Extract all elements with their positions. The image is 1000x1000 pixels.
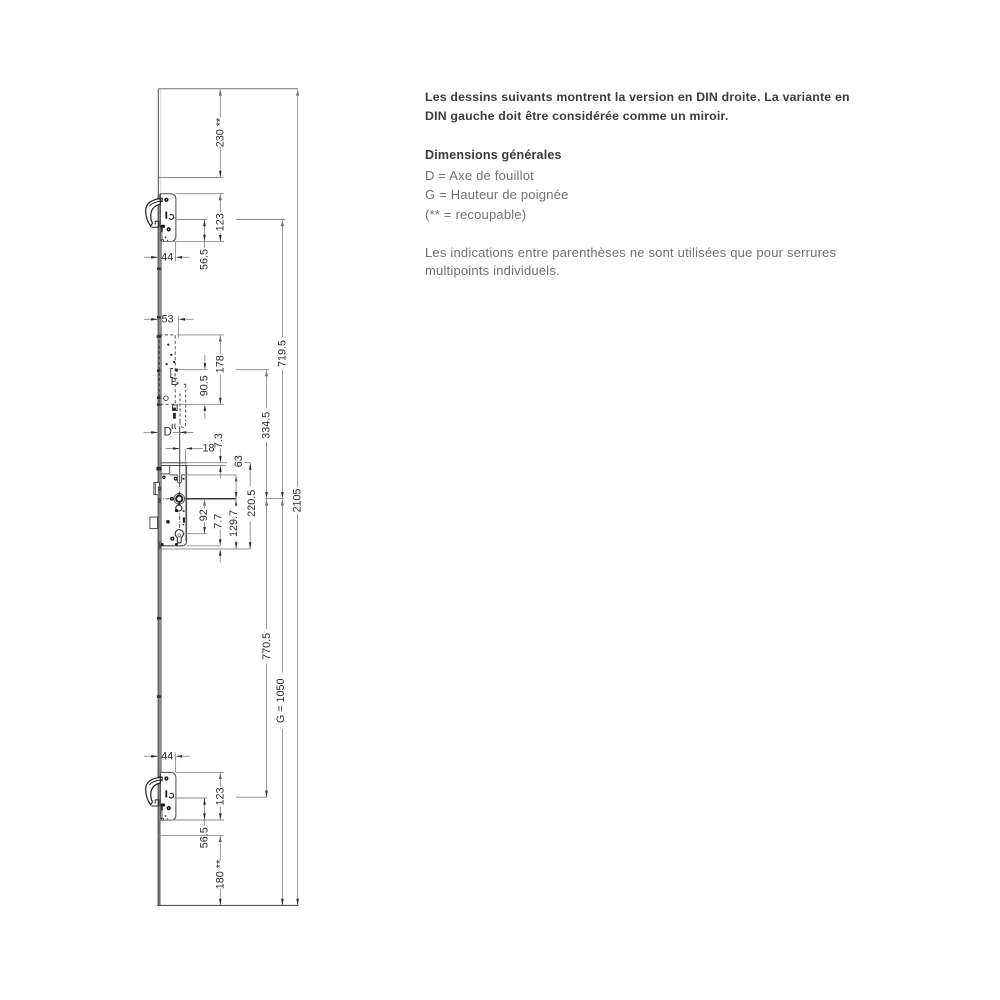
svg-text:90.5: 90.5 (199, 375, 211, 396)
svg-text:92: 92 (198, 509, 210, 521)
svg-text:180 **: 180 ** (214, 859, 226, 889)
svg-text:56.5: 56.5 (199, 249, 211, 270)
svg-text:178: 178 (214, 355, 226, 373)
svg-text:D: D (164, 426, 172, 438)
svg-text:56.5: 56.5 (199, 827, 211, 848)
svg-text:44: 44 (161, 251, 173, 263)
svg-text:53: 53 (161, 313, 173, 325)
svg-text:44: 44 (161, 750, 173, 762)
svg-text:123: 123 (214, 213, 226, 231)
svg-text:2105: 2105 (292, 488, 304, 512)
svg-text:230 **: 230 ** (214, 117, 226, 147)
svg-text:129.7: 129.7 (228, 510, 240, 537)
svg-text:G = 1050: G = 1050 (275, 678, 287, 723)
svg-text:7.3: 7.3 (213, 433, 225, 448)
svg-text:63: 63 (233, 455, 245, 467)
svg-text:220.5: 220.5 (246, 490, 258, 517)
svg-text:334.5: 334.5 (261, 412, 273, 439)
svg-text:770.5: 770.5 (261, 633, 273, 660)
svg-text:719.5: 719.5 (276, 340, 288, 367)
svg-text:7.7: 7.7 (212, 514, 224, 529)
svg-text:123: 123 (214, 787, 226, 805)
